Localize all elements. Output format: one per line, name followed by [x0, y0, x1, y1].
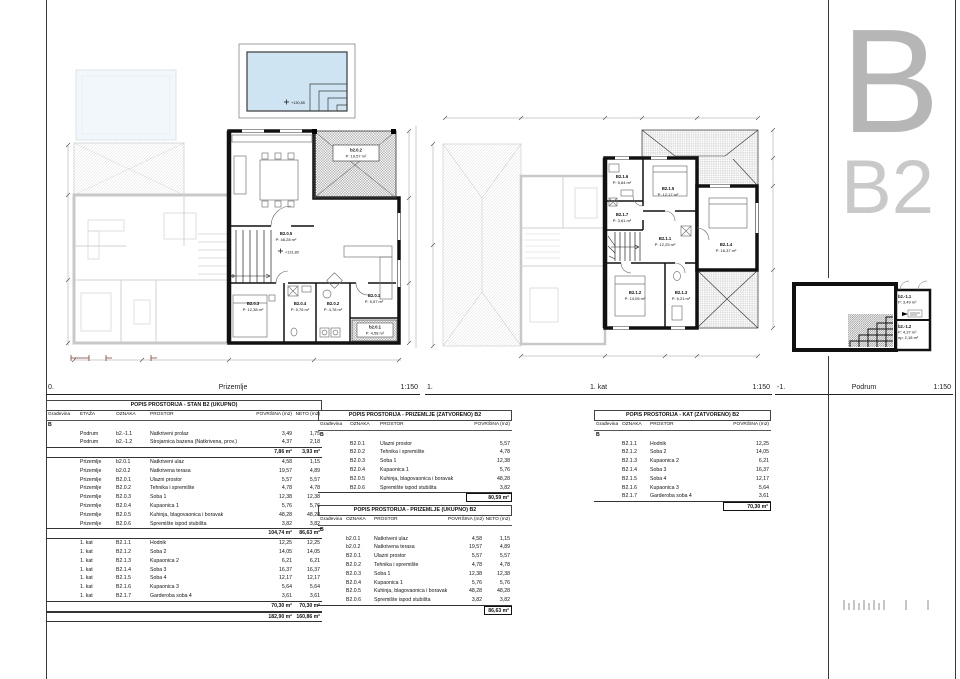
table-cell: Kupaonica 3	[648, 484, 723, 493]
table-cell	[318, 606, 344, 615]
table-cell	[46, 557, 78, 566]
room-label: B2.1.4	[720, 242, 733, 247]
column-header: PROSTOR	[372, 516, 448, 525]
table-cell	[348, 493, 378, 502]
table-cell: B2.0.5	[348, 475, 378, 484]
table-cell: B2.0.2	[344, 561, 372, 570]
pool: +130,85	[239, 44, 355, 118]
table-body: Bb2.0.1Natkriveni ulaz4,581,15b2.0.2Natk…	[318, 526, 512, 615]
table-cell: 12,25	[723, 440, 771, 449]
table-cell: Prizemlje	[78, 520, 114, 529]
table-cell: B2.1.5	[620, 475, 648, 484]
table-cell	[484, 526, 512, 535]
table-cell	[372, 606, 448, 615]
room-area: P: 12,38 m²	[243, 307, 264, 312]
table-cell	[78, 421, 114, 430]
table-cell: 5,57	[466, 440, 512, 449]
table-cell	[594, 448, 620, 457]
table-cell	[344, 606, 372, 615]
table-row: Prizemljeb2.0.1Natkriveni ulaz4,581,15	[46, 458, 322, 467]
table-cell	[648, 502, 723, 511]
table-cell	[46, 493, 78, 502]
table-cell	[348, 431, 378, 440]
table-cell	[318, 484, 348, 493]
table-cell	[46, 458, 78, 467]
table-cell	[378, 431, 466, 440]
table-title: POPIS PROSTORIJA - STAN B2 (UKUPNO)	[46, 400, 322, 411]
table-cell: 19,57	[448, 543, 484, 552]
room-label: B2.0.1	[368, 293, 381, 298]
room-label: B2.1.7	[616, 212, 629, 217]
table-cell: 12,25	[250, 539, 294, 548]
table-cell	[46, 602, 78, 611]
table-cell: 12,17	[250, 574, 294, 583]
table-cell: 12,38	[448, 570, 484, 579]
pool-stairs-hatch	[848, 314, 893, 347]
room-label: b2.0.2	[350, 148, 363, 153]
table-cell: B2.0.1	[344, 552, 372, 561]
table-cell: B2.0.4	[348, 466, 378, 475]
table-cell	[114, 448, 148, 457]
column-header: NETO (m2)	[484, 516, 512, 525]
scale-ruler	[840, 594, 940, 614]
table-cell	[620, 431, 648, 440]
table-row: B2.0.3Soba 112,3812,38	[318, 570, 512, 579]
table-cell: B2.0.6	[344, 596, 372, 605]
table-cell	[318, 552, 344, 561]
table-cell	[318, 535, 344, 544]
table-cell: Soba 4	[648, 475, 723, 484]
table-cell	[318, 579, 344, 588]
table-cell	[318, 448, 348, 457]
table-row: B2.0.1Ulazni prostor5,575,57	[318, 552, 512, 561]
table-cell: Soba 1	[378, 457, 466, 466]
table-cell	[594, 492, 620, 501]
table-row: B2.0.5Kuhinja, blagovaonica i boravak48,…	[318, 587, 512, 596]
column-header: OZNAKA	[114, 411, 148, 420]
table-cell: 1. kat	[78, 539, 114, 548]
room-area: P: 19,57 m²	[346, 154, 367, 159]
table-cell: B2.1.2	[620, 448, 648, 457]
kat-plan: B2.1.6 P: 5,64 m² B2.1.5 P: 12,17 m² B2.…	[425, 98, 797, 380]
table-row: B2.0.6Spremište ispod stubišta3,823,82	[318, 596, 512, 605]
table-body: BPodrumb2.-1.1Natkriveni prolaz3,491,75P…	[46, 421, 322, 623]
table-cell	[148, 529, 250, 538]
table-cell: 4,78	[484, 561, 512, 570]
table-cell: 4,58	[448, 535, 484, 544]
table-cell: Ulazni prostor	[378, 440, 466, 449]
table-cell: Soba 3	[648, 466, 723, 475]
table-cell: B2.1.1	[114, 539, 148, 548]
table-cell: 12,38	[250, 493, 294, 502]
table-cell: B2.0.1	[114, 476, 148, 485]
table-cell: 1. kat	[78, 574, 114, 583]
table-cell: Soba 2	[648, 448, 723, 457]
column-header: Građevina	[318, 516, 344, 525]
table-row: 1. katB2.1.1Hodnik12,2512,25	[46, 539, 322, 548]
room-area: P: 3,61 m²	[613, 218, 632, 223]
table-cell	[318, 561, 344, 570]
table-cell	[594, 440, 620, 449]
table-row: B2.0.4Kupaonica 15,765,76	[318, 579, 512, 588]
table-row: B2.1.1Hodnik12,25	[594, 440, 771, 449]
table-cell: B2.1.7	[620, 492, 648, 501]
table-cell	[46, 448, 78, 457]
plan-name: Prizemlje	[46, 383, 420, 393]
table-cell: b2.-1.2	[114, 438, 148, 447]
table-row: 1. katB2.1.3Kupaonica 26,216,21	[46, 557, 322, 566]
table-cell: Prizemlje	[78, 484, 114, 493]
table-cell: 5,57	[250, 476, 294, 485]
room-label: B2.0.5	[280, 231, 293, 236]
column-header: OZNAKA	[344, 516, 372, 525]
plan-title-podrum: -1. Podrum 1:150	[775, 383, 953, 395]
table-cell: 4,78	[448, 561, 484, 570]
table-row: PrizemljeB2.0.2Tehnika i spremište4,784,…	[46, 484, 322, 493]
table-cell	[594, 475, 620, 484]
table-row: PrizemljeB2.0.3Soba 112,3812,38	[46, 493, 322, 502]
room-label: B2.0.3	[247, 301, 260, 306]
table-row: B2.0.5Kuhinja, blagovaonica i boravak48,…	[318, 475, 512, 484]
column-header: PROSTOR	[648, 421, 723, 430]
table-cell: b2.0.2	[344, 543, 372, 552]
column-header: OZNAKA	[620, 421, 648, 430]
table-cell: 3,61	[250, 592, 294, 601]
table-cell: 3,82	[484, 596, 512, 605]
table-cell: Hodnik	[148, 539, 250, 548]
room-label: b2.0.1	[369, 325, 382, 330]
table-cell	[620, 502, 648, 511]
table-cell: 1. kat	[78, 592, 114, 601]
table-cell	[78, 602, 114, 611]
table-cell	[78, 529, 114, 538]
table-cell	[318, 466, 348, 475]
room-area: P: 14,05 m²	[625, 296, 646, 301]
table-row: B	[46, 421, 322, 430]
column-header: POVRŠINA (m2)	[250, 411, 294, 420]
room-label: B2.1.5	[662, 186, 675, 191]
table-row: b2.0.2Natkrivena terasa19,574,89	[318, 543, 512, 552]
table-cell: Garderoba soba 4	[648, 492, 723, 501]
plan-name: 1. kat	[425, 383, 772, 393]
table-cell: 12,17	[723, 475, 771, 484]
table-cell: 182,90 m²	[250, 613, 294, 622]
table-cell: 48,28	[448, 587, 484, 596]
table-cell	[318, 440, 348, 449]
table-cell: 3,82	[448, 596, 484, 605]
table-cell: Tehnika i spremište	[372, 561, 448, 570]
table-cell: B2.0.4	[344, 579, 372, 588]
table-cell: B2.1.2	[114, 548, 148, 557]
room-area: P: 5,57 m²	[365, 299, 384, 304]
column-header: Građevina	[318, 421, 348, 430]
table-cell: Hodnik	[648, 440, 723, 449]
table-cell: Spremište ispod stubišta	[372, 596, 448, 605]
table-cell: Ulazni prostor	[148, 476, 250, 485]
table-header: Građevina OZNAKA PROSTOR POVRŠINA (m2) N…	[318, 516, 512, 526]
table-cell: 86,63 m²	[484, 606, 512, 615]
column-header: POVRŠINA (m2)	[466, 421, 512, 430]
table-cell: 14,05	[723, 448, 771, 457]
adjacent-unit-faded	[443, 144, 605, 346]
table-row: B	[594, 431, 771, 440]
table-cell	[448, 526, 484, 535]
sheet-right-border	[955, 0, 956, 679]
table-cell	[46, 529, 78, 538]
table-cell: 1,15	[484, 535, 512, 544]
table-cell	[318, 543, 344, 552]
table-cell: B2.1.3	[114, 557, 148, 566]
table-cell	[448, 606, 484, 615]
terrace-hatch: b2.0.2 P: 19,57 m²	[312, 129, 396, 198]
table-cell: b2.-1.1	[114, 430, 148, 439]
table-cell: 5,76	[250, 502, 294, 511]
table-cell: B2.0.3	[344, 570, 372, 579]
table-cell: Prizemlje	[78, 467, 114, 476]
table-cell: Strojarnica bazena (Natkrivena, prov.)	[148, 438, 250, 447]
table-row: 86,63 m²	[318, 605, 512, 615]
table-row: Podrumb2.-1.2Strojarnica bazena (Natkriv…	[46, 438, 322, 447]
table-cell: 5,64	[250, 583, 294, 592]
table-cell: Garderoba soba 4	[148, 592, 250, 601]
table-row: PrizemljeB2.0.4Kupaonica 15,765,76	[46, 502, 322, 511]
table-cell: B2.0.2	[348, 448, 378, 457]
table-cell: Soba 1	[148, 493, 250, 502]
table-cell	[114, 529, 148, 538]
column-header: PROSTOR	[148, 411, 250, 420]
plan-name: Podrum	[775, 383, 953, 393]
table-cell	[318, 457, 348, 466]
table-row: 104,74 m²86,63 m²	[46, 528, 322, 539]
table-title: POPIS PROSTORIJA - PRIZEMLJE (UKUPNO) B2	[318, 505, 512, 516]
table-cell	[148, 448, 250, 457]
table-cell: 6,21	[723, 457, 771, 466]
table-row: B2.1.6Kupaonica 35,64	[594, 484, 771, 493]
table-cell: Prizemlje	[78, 502, 114, 511]
table-cell: Spremište ispod stubišta	[378, 484, 466, 493]
table-cell: Tehnika i spremište	[378, 448, 466, 457]
table-cell: Kuhinja, blagovaonica i boravak	[378, 475, 466, 484]
room-label: B2.1.6	[616, 174, 629, 179]
table-cell: Spremište ispod stubišta	[148, 520, 250, 529]
table-row: b2.0.1Natkriveni ulaz4,581,15	[318, 535, 512, 544]
table-cell: Kupaonica 1	[372, 579, 448, 588]
room-area: P: 48,28 m²	[276, 237, 297, 242]
room-table-floor-closed: POPIS PROSTORIJA - KAT (ZATVORENO) B2 Gr…	[594, 410, 771, 511]
room-area: P: 4,58 m²	[366, 331, 385, 336]
table-cell: 3,61	[723, 492, 771, 501]
table-cell	[344, 526, 372, 535]
table-cell: Soba 4	[148, 574, 250, 583]
table-cell: Prizemlje	[78, 476, 114, 485]
table-row: 1. katB2.1.6Kupaonica 35,645,64	[46, 583, 322, 592]
table-cell	[114, 421, 148, 430]
plan-title-kat: 1. 1. kat 1:150	[425, 383, 772, 395]
table-cell: 5,76	[466, 466, 512, 475]
table-header: Građevina OZNAKA PROSTOR POVRŠINA (m2)	[318, 421, 512, 431]
table-row: B2.1.7Garderoba soba 43,61	[594, 492, 771, 501]
table-cell: Kuhinja, blagovaonica i boravak	[148, 511, 250, 520]
table-cell: B2.0.3	[114, 493, 148, 502]
table-cell	[594, 466, 620, 475]
table-cell	[46, 548, 78, 557]
table-row: PrizemljeB2.0.1Ulazni prostor5,575,57	[46, 476, 322, 485]
table-cell: 7,86 m²	[250, 448, 294, 457]
table-cell: B2.0.5	[114, 511, 148, 520]
table-row: B2.1.3Kupaonica 26,21	[594, 457, 771, 466]
room-area: P: 16,37 m²	[716, 248, 737, 253]
table-cell	[318, 570, 344, 579]
table-row: 182,90 m²160,86 m²	[46, 612, 322, 623]
table-cell: Prizemlje	[78, 511, 114, 520]
table-cell: 14,05	[250, 548, 294, 557]
table-cell	[148, 421, 250, 430]
room-table-total: POPIS PROSTORIJA - STAN B2 (UKUPNO) Građ…	[46, 400, 322, 622]
table-cell: B2.1.3	[620, 457, 648, 466]
table-cell: Natkrivena terasa	[372, 543, 448, 552]
room-area: P: 3,49 m²	[898, 300, 917, 305]
table-cell: b2.0.1	[344, 535, 372, 544]
table-row: B2.0.1Ulazni prostor5,57	[318, 440, 512, 449]
entrance-hatch: b2.0.1 P: 4,58 m²	[352, 320, 397, 341]
table-row: B2.1.5Soba 412,17	[594, 475, 771, 484]
table-cell: 4,89	[484, 543, 512, 552]
table-cell	[372, 526, 448, 535]
table-cell: B	[594, 431, 620, 440]
table-row: 70,30 m²	[594, 501, 771, 511]
room-label: B2.1.3	[675, 290, 688, 295]
table-cell: Prizemlje	[78, 493, 114, 502]
table-cell: B2.0.5	[344, 587, 372, 596]
room-area: P: 5,76 m²	[291, 307, 310, 312]
room-label: B2.0.4	[294, 301, 307, 306]
table-cell	[46, 539, 78, 548]
table-cell	[46, 583, 78, 592]
table-cell: Podrum	[78, 438, 114, 447]
table-cell: Soba 1	[372, 570, 448, 579]
table-cell: B2.1.6	[114, 583, 148, 592]
table-cell: Podrum	[78, 430, 114, 439]
table-cell	[46, 592, 78, 601]
table-cell: B	[318, 431, 348, 440]
table-cell: B2.0.1	[348, 440, 378, 449]
table-cell: B2.0.6	[348, 484, 378, 493]
table-cell	[46, 484, 78, 493]
table-cell	[46, 502, 78, 511]
column-header: ETAŽA	[78, 411, 114, 420]
table-cell: Ulazni prostor	[372, 552, 448, 561]
table-cell: 3,82	[466, 484, 512, 493]
table-cell: B2.0.3	[348, 457, 378, 466]
table-cell: 104,74 m²	[250, 529, 294, 538]
prizemlje-plan: +130,85 b2.0.2 P: 19,57 m²	[46, 8, 426, 380]
room-area: P: 5,64 m²	[613, 180, 632, 185]
table-cell: Kupaonica 2	[148, 557, 250, 566]
column-header: OZNAKA	[348, 421, 378, 430]
table-row: 70,30 m²70,30 m²	[46, 601, 322, 612]
room-label: b2.-1.2	[898, 324, 912, 329]
table-cell: B2.0.4	[114, 502, 148, 511]
table-cell	[594, 484, 620, 493]
table-cell: 4,78	[466, 448, 512, 457]
table-cell	[46, 574, 78, 583]
table-cell: Natkriveni ulaz	[372, 535, 448, 544]
room-label: b2.-1.1	[898, 294, 912, 299]
plan-title-prizemlje: 0. Prizemlje 1:150	[46, 383, 420, 395]
table-row: B	[318, 431, 512, 440]
table-body: BB2.0.1Ulazni prostor5,57B2.0.2Tehnika i…	[318, 431, 512, 502]
table-row: Podrumb2.-1.1Natkriveni prolaz3,491,75	[46, 430, 322, 439]
table-cell: B	[46, 421, 78, 430]
table-cell: 16,37	[723, 466, 771, 475]
table-row: B2.1.2Soba 214,05	[594, 448, 771, 457]
table-cell: 1. kat	[78, 566, 114, 575]
table-cell: B	[318, 526, 344, 535]
table-row: B2.0.2Tehnika i spremište4,78	[318, 448, 512, 457]
table-cell	[46, 476, 78, 485]
sheet-code: B2	[841, 150, 934, 226]
table-cell: 16,37	[250, 566, 294, 575]
table-cell: 5,64	[723, 484, 771, 493]
table-cell: 70,30 m²	[250, 602, 294, 611]
table-row: B	[318, 526, 512, 535]
table-row: 80,59 m²	[318, 492, 512, 502]
plan-scale: 1:150	[400, 383, 418, 393]
table-cell	[594, 457, 620, 466]
table-cell: 48,28	[250, 511, 294, 520]
table-cell: Natkrivena terasa	[148, 467, 250, 476]
column-header: PROSTOR	[378, 421, 466, 430]
table-cell: Natkriveni prolaz	[148, 430, 250, 439]
table-row: 7,86 m²3,93 m²	[46, 447, 322, 458]
table-cell: 5,76	[484, 579, 512, 588]
adjacent-unit-faded	[74, 70, 231, 343]
table-cell	[46, 467, 78, 476]
table-cell	[46, 511, 78, 520]
table-cell: B2.1.4	[620, 466, 648, 475]
table-cell: B2.1.1	[620, 440, 648, 449]
table-row: B2.0.6Spremište ispod stubišta3,82	[318, 484, 512, 493]
table-cell: 4,58	[250, 458, 294, 467]
table-cell: 1. kat	[78, 557, 114, 566]
table-cell	[723, 431, 771, 440]
table-cell: Kupaonica 1	[148, 502, 250, 511]
table-cell	[114, 602, 148, 611]
table-cell	[466, 431, 512, 440]
table-cell	[250, 421, 294, 430]
table-cell: Natkriveni ulaz	[148, 458, 250, 467]
drawing-sheet: B B2 +130,85	[0, 0, 960, 679]
table-cell: B2.1.4	[114, 566, 148, 575]
table-cell: 12,38	[484, 570, 512, 579]
table-cell: 5,57	[484, 552, 512, 561]
pool-level-label: +130,85	[291, 101, 305, 105]
table-row: PrizemljeB2.0.5Kuhinja, blagovaonica i b…	[46, 511, 322, 520]
table-cell: Tehnika i spremište	[148, 484, 250, 493]
table-row: 1. katB2.1.5Soba 412,1712,17	[46, 574, 322, 583]
plan-scale: 1:150	[933, 383, 951, 393]
column-header: POVRŠINA (m2)	[448, 516, 484, 525]
table-cell: Kupaonica 3	[148, 583, 250, 592]
table-cell: 19,57	[250, 467, 294, 476]
column-header: Građevina	[46, 411, 78, 420]
table-cell: 48,28	[484, 587, 512, 596]
table-cell	[78, 448, 114, 457]
table-cell	[648, 431, 723, 440]
table-cell	[318, 475, 348, 484]
table-row: PrizemljeB2.0.6Spremište ispod stubišta3…	[46, 520, 322, 529]
table-row: Prizemljeb2.0.2Natkrivena terasa19,574,8…	[46, 467, 322, 476]
